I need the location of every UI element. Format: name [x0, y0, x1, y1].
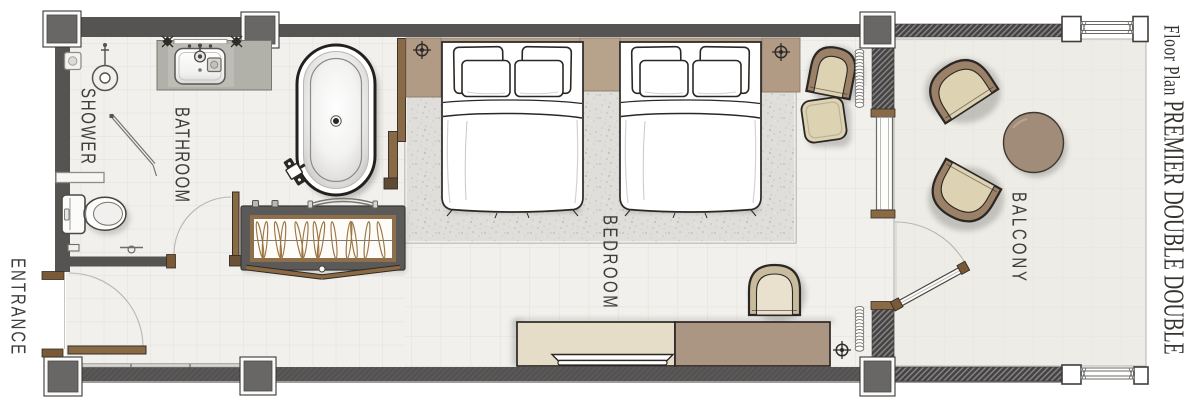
- svg-text:SHOWER: SHOWER: [77, 88, 100, 166]
- svg-text:BATHROOM: BATHROOM: [171, 107, 194, 203]
- svg-text:BEDROOM: BEDROOM: [599, 215, 622, 310]
- svg-text:BALCONY: BALCONY: [1008, 192, 1031, 284]
- svg-text:ENTRANCE: ENTRANCE: [7, 258, 30, 356]
